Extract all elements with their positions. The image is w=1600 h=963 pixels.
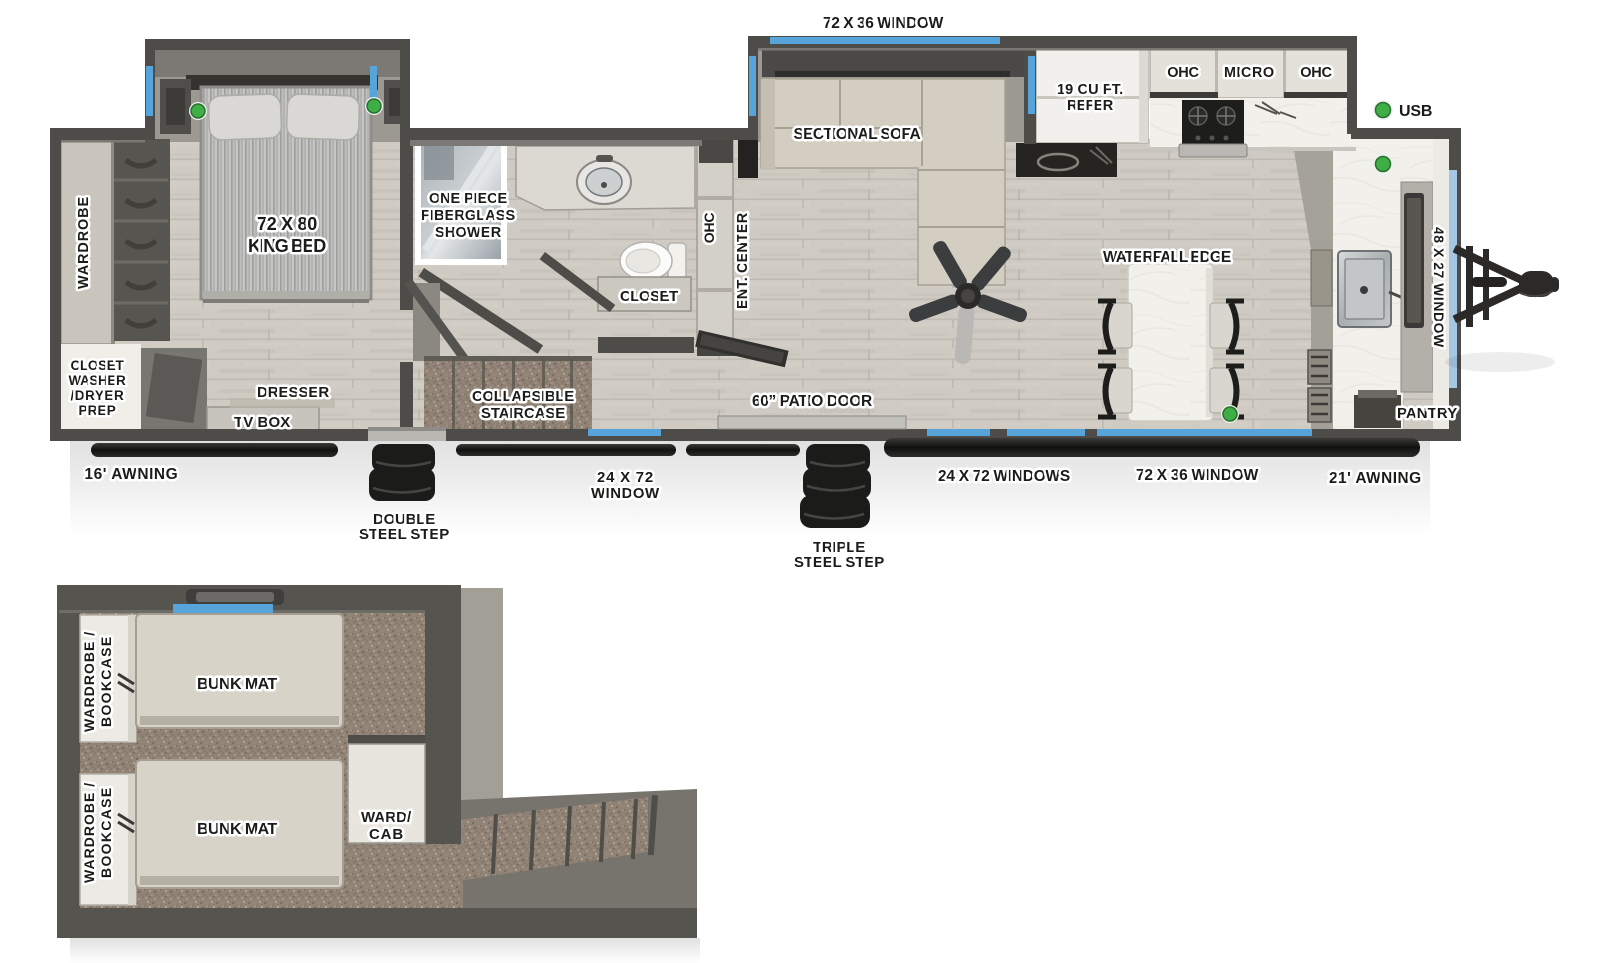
svg-text:ONE PIECE: ONE PIECE xyxy=(429,191,508,207)
svg-text:CLOSET: CLOSET xyxy=(620,288,678,305)
svg-text:72 X 36 WINDOW: 72 X 36 WINDOW xyxy=(823,15,944,32)
svg-text:BOOKCASE: BOOKCASE xyxy=(98,637,114,727)
svg-text:/DRYER: /DRYER xyxy=(71,388,124,403)
svg-text:WARDROBE /: WARDROBE / xyxy=(81,783,97,883)
svg-text:SHOWER: SHOWER xyxy=(435,225,502,241)
svg-text:DRESSER: DRESSER xyxy=(257,384,329,401)
svg-text:COLLAPSIBLE: COLLAPSIBLE xyxy=(472,388,574,405)
svg-text:24 X 72: 24 X 72 xyxy=(597,469,653,486)
svg-text:STAIRCASE: STAIRCASE xyxy=(481,405,565,422)
svg-text:WARDROBE: WARDROBE xyxy=(76,196,92,289)
svg-text:STEEL STEP: STEEL STEP xyxy=(794,554,884,571)
svg-text:SECTIONAL SOFA: SECTIONAL SOFA xyxy=(794,126,921,143)
svg-text:72 X 80: 72 X 80 xyxy=(257,214,317,234)
svg-text:60” PATIO DOOR: 60” PATIO DOOR xyxy=(752,393,872,410)
svg-text:CAB: CAB xyxy=(369,826,403,843)
svg-text:72 X 36 WINDOW: 72 X 36 WINDOW xyxy=(1136,467,1259,484)
svg-text:BUNK MAT: BUNK MAT xyxy=(197,676,277,693)
svg-text:WATERFALL EDGE: WATERFALL EDGE xyxy=(1103,249,1231,266)
svg-text:USB: USB xyxy=(1399,103,1432,120)
svg-text:OHC: OHC xyxy=(1300,65,1332,81)
svg-text:PANTRY: PANTRY xyxy=(1397,405,1457,422)
svg-text:REFER: REFER xyxy=(1067,98,1114,114)
svg-text:BUNK MAT: BUNK MAT xyxy=(197,821,277,838)
svg-text:WARDROBE /: WARDROBE / xyxy=(81,632,97,732)
svg-text:STEEL STEP: STEEL STEP xyxy=(359,526,449,543)
svg-text:WASHER: WASHER xyxy=(69,373,126,388)
svg-text:OHC: OHC xyxy=(701,213,717,244)
svg-text:KING BED: KING BED xyxy=(248,236,326,256)
svg-text:BOOKCASE: BOOKCASE xyxy=(98,788,114,878)
svg-text:WINDOW: WINDOW xyxy=(591,485,660,502)
svg-text:ENT. CENTER: ENT. CENTER xyxy=(735,212,751,309)
svg-text:FIBERGLASS: FIBERGLASS xyxy=(421,208,516,224)
svg-text:WARD/: WARD/ xyxy=(361,809,412,826)
svg-text:19 CU FT.: 19 CU FT. xyxy=(1057,82,1123,98)
svg-text:OHC: OHC xyxy=(1167,65,1199,81)
svg-text:CLOSET: CLOSET xyxy=(71,358,125,373)
svg-text:MICRO: MICRO xyxy=(1224,65,1274,81)
svg-text:21' AWNING: 21' AWNING xyxy=(1329,470,1421,487)
svg-text:TV BOX: TV BOX xyxy=(234,414,290,431)
svg-text:PREP: PREP xyxy=(79,403,116,418)
svg-text:24 X 72 WINDOWS: 24 X 72 WINDOWS xyxy=(938,468,1070,485)
svg-text:48 X 27 WINDOW: 48 X 27 WINDOW xyxy=(1431,227,1447,348)
svg-text:16' AWNING: 16' AWNING xyxy=(85,466,178,483)
